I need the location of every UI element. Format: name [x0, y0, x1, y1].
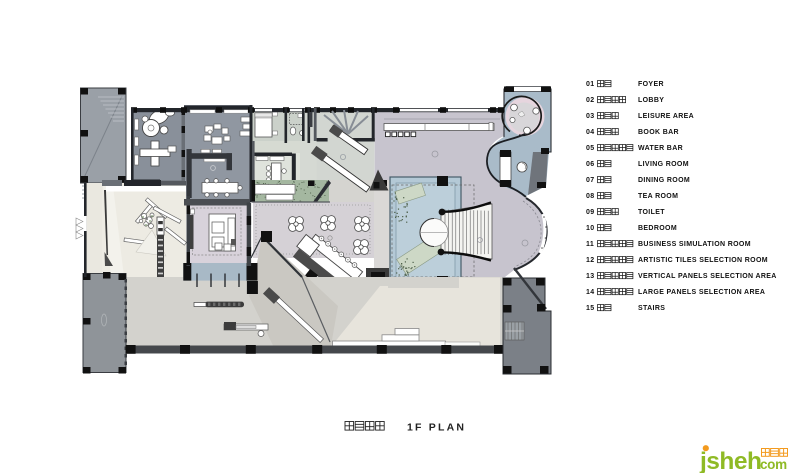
svg-text:TEA ROOM: TEA ROOM: [638, 193, 678, 200]
svg-text:03: 03: [586, 113, 595, 120]
svg-text:05: 05: [586, 145, 595, 152]
svg-text:07: 07: [586, 177, 595, 184]
svg-text:WATER BAR: WATER BAR: [638, 145, 683, 152]
svg-text:09: 09: [586, 209, 595, 216]
svg-text:LIVING ROOM: LIVING ROOM: [638, 161, 689, 168]
svg-text:01: 01: [586, 81, 595, 88]
svg-text:DINING ROOM: DINING ROOM: [638, 177, 690, 184]
svg-text:15: 15: [586, 305, 595, 312]
svg-text:1F PLAN: 1F PLAN: [407, 422, 466, 434]
svg-text:14: 14: [586, 289, 595, 296]
svg-text:VERTICAL PANELS SELECTION AREA: VERTICAL PANELS SELECTION AREA: [638, 273, 777, 280]
svg-text:12: 12: [586, 257, 595, 264]
svg-text:.com: .com: [757, 457, 788, 472]
svg-text:STAIRS: STAIRS: [638, 305, 665, 312]
svg-text:LARGE PANELS SELECTION AREA: LARGE PANELS SELECTION AREA: [638, 289, 765, 296]
svg-text:LOBBY: LOBBY: [638, 97, 664, 104]
svg-text:TOILET: TOILET: [638, 209, 665, 216]
svg-text:BOOK BAR: BOOK BAR: [638, 129, 679, 136]
svg-text:LEISURE AREA: LEISURE AREA: [638, 113, 694, 120]
svg-text:BUSINESS SIMULATION ROOM: BUSINESS SIMULATION ROOM: [638, 241, 751, 248]
svg-text:FOYER: FOYER: [638, 81, 664, 88]
svg-text:08: 08: [586, 193, 595, 200]
svg-text:06: 06: [586, 161, 595, 168]
svg-text:04: 04: [586, 129, 595, 136]
svg-text:11: 11: [586, 241, 594, 248]
svg-text:13: 13: [586, 273, 595, 280]
svg-text:BEDROOM: BEDROOM: [638, 225, 677, 232]
svg-text:jsheh: jsheh: [699, 448, 762, 473]
svg-text:10: 10: [586, 225, 595, 232]
svg-text:02: 02: [586, 97, 595, 104]
svg-text:ARTISTIC TILES SELECTION ROOM: ARTISTIC TILES SELECTION ROOM: [638, 257, 768, 264]
